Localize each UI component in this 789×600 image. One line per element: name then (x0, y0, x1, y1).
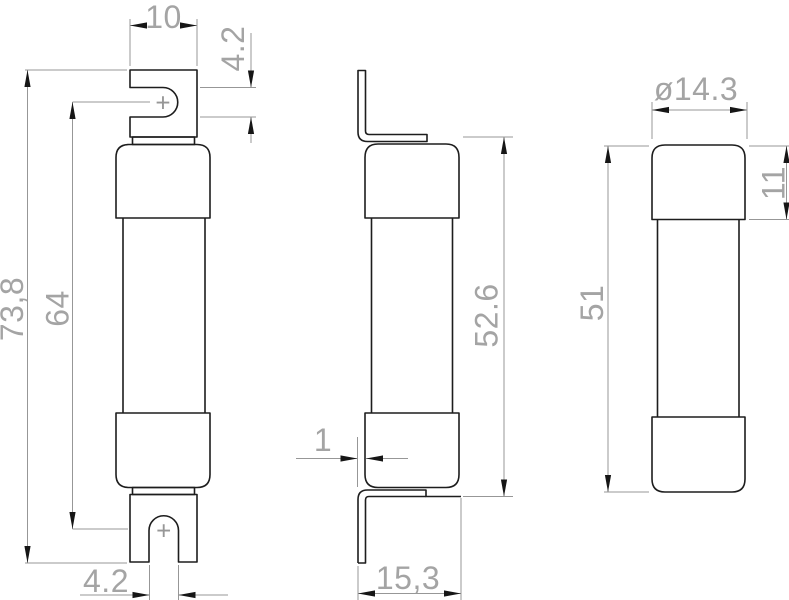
front-bottom-cap (116, 413, 210, 488)
end-part-outline (652, 145, 745, 492)
dim-side-tab-thickness: 1 (296, 422, 408, 487)
dim-arrow-down (783, 203, 789, 220)
dim-arrow-right (444, 590, 461, 596)
side-top-cap (365, 144, 459, 218)
dim-end-cap-length: 11 (749, 146, 789, 220)
dim-lines (604, 146, 649, 492)
dim-front-slot-centers: 64 (40, 102, 151, 529)
dim-lines (296, 437, 408, 487)
dim-arrow-up (69, 102, 75, 119)
dim-arrow-down (605, 475, 611, 492)
dim-arrow-right (180, 22, 197, 28)
front-part-outline: + + (116, 70, 210, 562)
dim-arrow-down (69, 512, 75, 529)
dim-text-tab-thickness: 1 (314, 422, 332, 458)
front-top-neck (133, 137, 195, 145)
dim-arrow-up (501, 137, 507, 154)
dim-end-cap-diameter: ø14.3 (652, 71, 747, 139)
front-view: + + 10 4.2 73,8 64 (0, 0, 256, 600)
dim-text-cap-diameter: ø14.3 (654, 71, 738, 107)
end-bottom-cap (652, 417, 745, 492)
side-view: 1 15,3 52.6 (296, 71, 513, 600)
dim-text-overall-length: 73,8 (0, 277, 30, 341)
slot-center-mark-top: + (155, 87, 170, 117)
dim-arrow-down (501, 480, 507, 497)
dim-end-body-length: 51 (574, 146, 649, 492)
dim-arrow-left (179, 592, 196, 598)
side-bottom-cap (365, 413, 459, 488)
front-bottom-neck (133, 488, 195, 495)
drawing-canvas: + + 10 4.2 73,8 64 (0, 0, 789, 600)
dim-front-blade-width: 10 (130, 0, 197, 66)
dim-arrow-up (248, 117, 254, 134)
dim-lines (73, 102, 151, 529)
dim-arrow-right (730, 107, 747, 113)
dim-arrow-left (652, 107, 669, 113)
dim-text-mounting-depth: 15,3 (376, 560, 440, 596)
front-tube (123, 218, 205, 413)
dim-text-slot-width-top: 4.2 (215, 26, 251, 72)
fuse-technical-drawing: + + 10 4.2 73,8 64 (0, 0, 789, 600)
dim-text-blade-width: 10 (145, 0, 182, 35)
end-top-cap (652, 145, 745, 220)
dim-arrow-left (358, 590, 375, 596)
dim-arrow-left (366, 455, 383, 461)
dim-arrow-right (341, 455, 358, 461)
dim-arrow-down (248, 71, 254, 88)
front-top-cap (116, 145, 210, 219)
dim-side-tab-face-distance: 52.6 (463, 137, 513, 497)
dim-arrow-up (24, 70, 30, 87)
dim-front-slot-width-bottom: 4.2 (80, 563, 228, 600)
dim-text-slot-centers: 64 (40, 290, 76, 327)
side-tube (372, 218, 453, 413)
dim-arrow-up (783, 146, 789, 163)
dim-arrow-right (133, 592, 150, 598)
dim-front-slot-width-top: 4.2 (200, 26, 256, 143)
side-part-outline (358, 71, 461, 564)
side-top-tab (358, 71, 427, 142)
side-bottom-tab-inner (358, 497, 426, 564)
dim-arrow-up (605, 146, 611, 163)
dim-text-cap-length: 11 (756, 166, 789, 200)
dim-text-tab-face-distance: 52.6 (469, 283, 505, 347)
dim-text-body-length: 51 (574, 285, 610, 322)
end-view: ø14.3 11 51 (574, 71, 789, 492)
dim-text-slot-width-bottom: 4.2 (83, 563, 129, 599)
dim-arrow-down (24, 546, 30, 563)
side-bottom-tab-outer (358, 490, 461, 563)
slot-center-mark-bottom: + (156, 516, 171, 546)
dim-side-mounting-depth: 15,3 (358, 498, 461, 600)
end-tube (658, 220, 740, 418)
